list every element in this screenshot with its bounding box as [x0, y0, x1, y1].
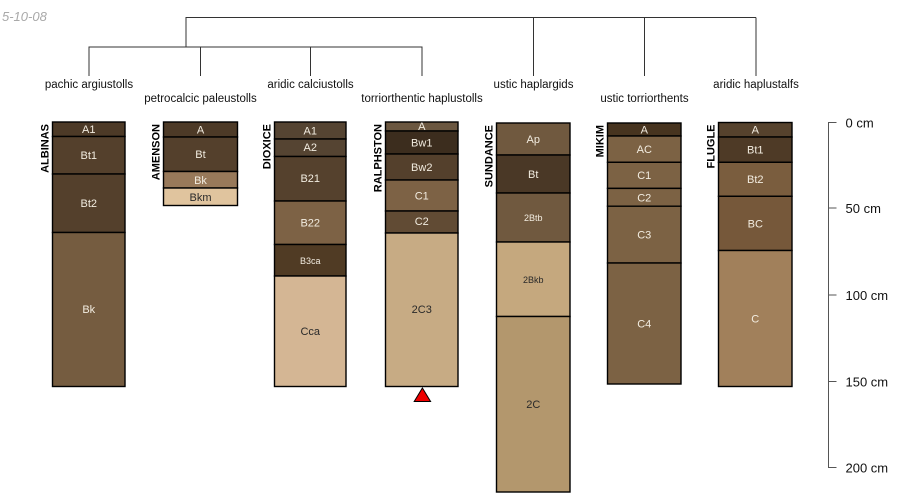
svg-text:5-10-08: 5-10-08 [2, 9, 48, 24]
svg-text:Bk: Bk [82, 304, 95, 316]
svg-text:2C3: 2C3 [412, 304, 432, 316]
svg-text:Bkm: Bkm [190, 192, 212, 204]
svg-text:Bk: Bk [194, 175, 207, 187]
svg-text:A1: A1 [304, 126, 317, 138]
svg-text:torriorthentic haplustolls: torriorthentic haplustolls [361, 93, 483, 105]
svg-text:A: A [418, 121, 426, 133]
svg-text:C3: C3 [637, 230, 651, 242]
svg-text:Bt: Bt [195, 149, 205, 161]
svg-text:C1: C1 [415, 191, 429, 203]
svg-text:DIOXICE: DIOXICE [262, 124, 274, 169]
svg-text:50 cm: 50 cm [846, 201, 881, 216]
svg-text:Bt2: Bt2 [80, 198, 97, 210]
svg-text:FLUGLE: FLUGLE [706, 125, 718, 169]
svg-text:AMENSON: AMENSON [151, 124, 163, 180]
svg-text:ustic haplargids: ustic haplargids [494, 79, 574, 91]
svg-text:BC: BC [748, 219, 763, 231]
svg-text:A2: A2 [304, 142, 317, 154]
svg-text:C: C [751, 314, 759, 326]
svg-text:200 cm: 200 cm [846, 461, 889, 476]
svg-text:MIKIM: MIKIM [595, 125, 607, 157]
svg-text:aridic haplustalfs: aridic haplustalfs [713, 79, 799, 91]
svg-text:pachic argiustolls: pachic argiustolls [45, 79, 133, 91]
svg-text:100 cm: 100 cm [846, 288, 889, 303]
svg-text:A: A [752, 125, 760, 137]
svg-text:B21: B21 [300, 173, 320, 185]
svg-text:SUNDANCE: SUNDANCE [484, 125, 496, 187]
svg-text:Bt: Bt [528, 169, 538, 181]
svg-text:Bt1: Bt1 [747, 145, 764, 157]
svg-text:0 cm: 0 cm [846, 116, 874, 131]
svg-text:C2: C2 [415, 216, 429, 228]
svg-text:C1: C1 [637, 170, 651, 182]
svg-text:Bw1: Bw1 [411, 138, 432, 150]
svg-text:C2: C2 [637, 193, 651, 205]
svg-text:B22: B22 [300, 218, 320, 230]
svg-text:A: A [641, 125, 649, 137]
svg-text:Cca: Cca [300, 326, 320, 338]
svg-text:petrocalcic paleustolls: petrocalcic paleustolls [144, 93, 257, 105]
svg-text:ALBINAS: ALBINAS [40, 124, 52, 173]
svg-text:aridic calciustolls: aridic calciustolls [267, 79, 354, 91]
svg-text:Ap: Ap [527, 134, 540, 146]
svg-text:Bt2: Bt2 [747, 174, 764, 186]
svg-text:2Btb: 2Btb [524, 213, 543, 223]
svg-text:A: A [197, 125, 205, 137]
svg-text:150 cm: 150 cm [846, 375, 889, 390]
svg-text:RALPHSTON: RALPHSTON [373, 124, 385, 192]
svg-text:B3ca: B3ca [300, 256, 321, 266]
svg-text:ustic torriorthents: ustic torriorthents [600, 93, 688, 105]
svg-text:C4: C4 [637, 319, 651, 331]
svg-text:2Bkb: 2Bkb [523, 275, 544, 285]
svg-text:2C: 2C [526, 399, 540, 411]
svg-text:A1: A1 [82, 124, 95, 136]
svg-text:AC: AC [637, 144, 652, 156]
svg-text:Bw2: Bw2 [411, 162, 432, 174]
svg-text:Bt1: Bt1 [80, 150, 97, 162]
